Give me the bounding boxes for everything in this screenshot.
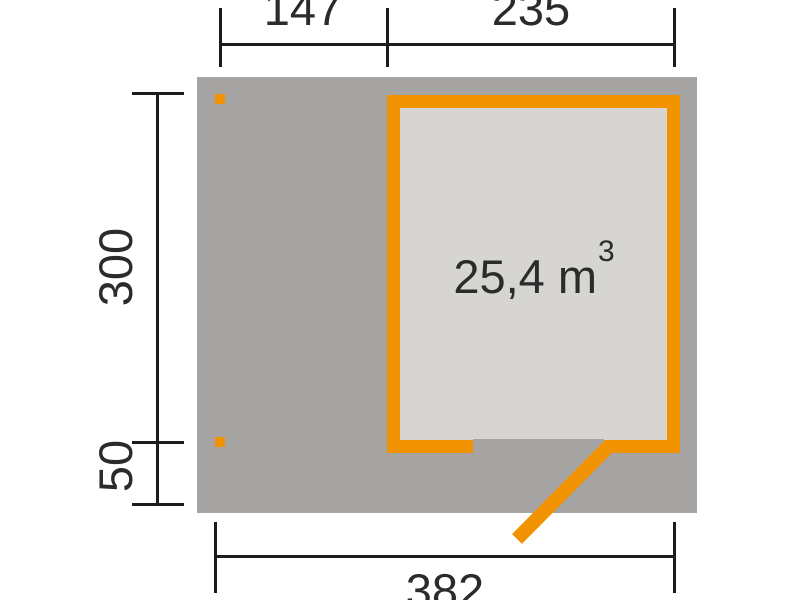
volume-label: 25,4 m3 [400,253,667,300]
dimension-label-left-lower: 50 [91,393,141,539]
post-bottom-left [215,437,225,447]
dimension-line-top [219,43,676,46]
tick-top-right [673,8,676,67]
dimension-line-bottom [215,555,675,558]
dimension-label-left-upper: 300 [91,194,141,340]
volume-exponent: 3 [598,235,615,268]
volume-value: 25,4 m [453,250,597,303]
tick-bottom-right [673,522,676,593]
dimension-label-top-right: 235 [471,0,591,34]
room-outline: 25,4 m3 [387,95,680,453]
floor-plan-diagram: 25,4 m3 147 235 300 50 382 [0,0,800,600]
tick-bottom-left [214,522,217,593]
door-opening [473,439,604,454]
dimension-label-bottom: 382 [385,566,505,600]
dimension-label-top-left: 147 [243,0,363,34]
tick-left-top [132,92,184,95]
tick-top-left [219,8,222,67]
tick-top-middle [386,8,389,67]
post-top-left [215,94,225,104]
